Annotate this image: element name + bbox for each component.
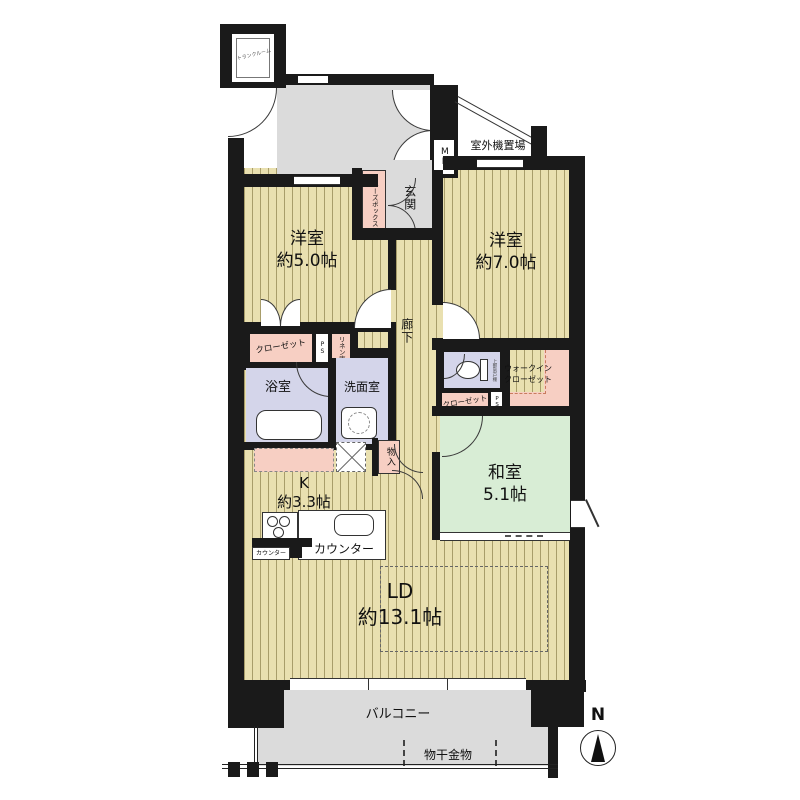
wall	[432, 170, 443, 305]
trunk-door-arc	[228, 88, 277, 137]
window-japanese-room	[571, 500, 585, 528]
ld-size: 約13.1帖	[358, 604, 443, 630]
japanese-room-size: 5.1帖	[483, 484, 527, 506]
wall-left	[228, 138, 244, 692]
bedroom-west-label: 洋室 約5.0帖	[247, 222, 367, 278]
wall-right	[569, 156, 585, 692]
bathtub-icon	[256, 410, 322, 440]
wall	[328, 358, 336, 444]
living-dining-label: LD 約13.1帖	[330, 578, 470, 630]
compass-needle	[591, 734, 605, 762]
burner-1	[267, 516, 278, 527]
kitchen-counter-wall	[252, 538, 312, 547]
balcony-area-left	[257, 726, 285, 766]
rail-post-3	[266, 762, 278, 777]
bedroom-west-size: 約5.0帖	[276, 250, 337, 272]
bedroom-east-name: 洋室	[489, 230, 523, 252]
wic-line1: ウォークイン	[504, 363, 552, 374]
rail-post-1	[228, 762, 240, 777]
stove-icon	[262, 512, 298, 540]
balcony-end-wall	[548, 726, 558, 778]
corridor-label: 廊下	[396, 308, 416, 354]
window-bedroom-west	[294, 176, 340, 185]
counter-sub-label: カウンター	[252, 547, 290, 560]
window-bedroom-east	[477, 159, 523, 168]
compass-icon	[580, 730, 616, 766]
laundry-tick-left	[403, 740, 407, 766]
japanese-room-name: 和室	[488, 462, 522, 484]
washroom-label: 洗面室	[334, 378, 390, 398]
laundry-hanger-label: 物干金物	[410, 748, 486, 764]
burner-2	[279, 516, 290, 527]
walk-in-closet-label: ウォークイン クローゼット	[504, 360, 552, 388]
burner-3	[273, 527, 284, 538]
bedroom-west-name: 洋室	[290, 228, 324, 250]
wall	[432, 406, 570, 416]
balcony-side-line	[254, 726, 258, 766]
balcony-wall-right	[531, 690, 584, 727]
pipe-space-1-label: PS	[316, 334, 328, 362]
toilet-tank-icon	[480, 359, 488, 381]
window-shutter-line	[585, 499, 599, 527]
kitchen-cabinet	[254, 448, 334, 472]
bedroom-east-label: 洋室 約7.0帖	[446, 224, 566, 280]
kitchen-label: K 約3.3帖	[256, 474, 352, 512]
fusuma-dash	[505, 535, 543, 537]
wall-window-small	[298, 76, 328, 83]
sink-icon	[334, 514, 374, 536]
laundry-tick-right	[495, 740, 499, 766]
kitchen-counter-post	[288, 544, 302, 558]
wic-line2: クローゼット	[504, 374, 552, 385]
toilet-shelf-label: 上部吊戸棚	[489, 353, 499, 387]
balcony-area	[284, 690, 531, 766]
balcony-label: バルコニー	[348, 706, 448, 724]
refrigerator-space	[336, 442, 366, 472]
balcony-area-right	[531, 727, 549, 766]
floor-plan: トランクルーム MB 室外機置場 シューズボックス 玄関 洋室	[0, 0, 800, 800]
wall	[388, 240, 396, 290]
compass-north-label: N	[588, 704, 608, 726]
washing-machine-drum	[348, 412, 370, 434]
japanese-room-label: 和室 5.1帖	[445, 458, 565, 510]
wall	[352, 348, 396, 358]
bedroom-east-size: 約7.0帖	[475, 252, 536, 274]
rail-post-2	[247, 762, 259, 777]
kitchen-name: K	[299, 474, 309, 494]
bathroom-label: 浴室	[250, 378, 306, 398]
wall	[432, 452, 440, 540]
ld-name: LD	[387, 578, 414, 604]
balcony-wall-left	[228, 690, 284, 728]
counter-main-label: カウンター	[306, 542, 382, 558]
